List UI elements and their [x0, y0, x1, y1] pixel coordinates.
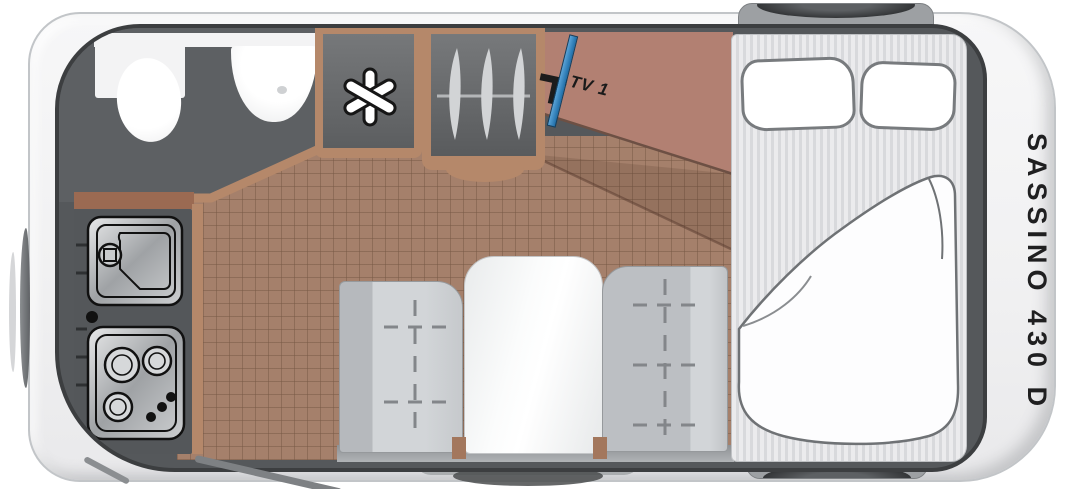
- bench-wood-side: [452, 437, 466, 459]
- seat-marks: [340, 282, 462, 452]
- dinette-left-bench: [339, 281, 463, 453]
- fridge-cabinet: [315, 28, 422, 158]
- caravan-floorplan: TV 1: [0, 0, 1080, 489]
- front-drawbar-seam-highlight: [9, 252, 16, 372]
- drawer-lines: [76, 245, 87, 385]
- dinette-table: [464, 256, 603, 454]
- fridge-interior: [323, 34, 414, 148]
- front-drawbar-seam: [20, 228, 30, 388]
- dinette-right-bench: [602, 266, 728, 452]
- kitchen-units: [74, 209, 192, 454]
- kitchen-block: [74, 209, 192, 454]
- tire-icon: [757, 3, 915, 18]
- kitchen-trim-top: [74, 192, 194, 209]
- bench-wood-side: [593, 437, 607, 459]
- drain-icon: [277, 86, 287, 94]
- model-label: SASSINO 430 D: [1000, 88, 1052, 458]
- pillow-right: [859, 60, 957, 131]
- hanger-icon: [431, 34, 536, 156]
- interior-walls: TV 1: [55, 24, 987, 472]
- snowflake-icon: [338, 65, 402, 129]
- pillow-left: [740, 56, 856, 132]
- gas-knob-dot: [86, 311, 98, 323]
- wardrobe-interior: [431, 34, 536, 156]
- wardrobe-cabinet: [422, 28, 545, 170]
- wardrobe-front-curve: [446, 156, 524, 182]
- duvet: [731, 144, 965, 462]
- seat-marks: [603, 267, 727, 451]
- kitchen-trim-right: [192, 204, 203, 454]
- stove-icon: [88, 327, 184, 439]
- sink-icon: [88, 217, 182, 305]
